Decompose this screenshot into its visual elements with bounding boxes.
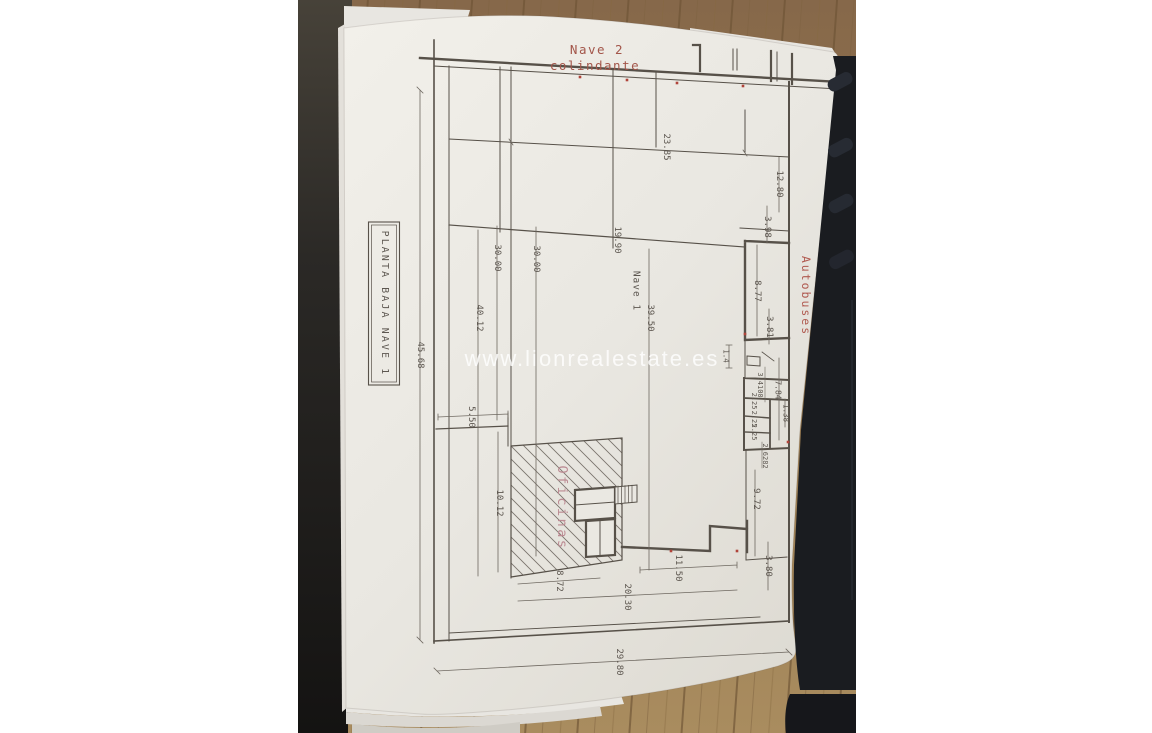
dim-29-80: 29.80 bbox=[614, 648, 624, 675]
dim-10-12: 10.12 bbox=[494, 489, 504, 516]
dim-3-81: 3.81 bbox=[764, 316, 774, 338]
dim-30-00-a: 30.00 bbox=[492, 244, 502, 271]
dim-2-6282: 2.6282 bbox=[761, 443, 769, 468]
room-label-nave1: Nave 1 bbox=[631, 271, 642, 311]
dim-9-72: 9.72 bbox=[751, 488, 761, 510]
neighbor-label-line1: Nave 2 bbox=[570, 42, 624, 57]
dim-40-12: 40.12 bbox=[474, 304, 484, 331]
dim-8-72: 8.72 bbox=[554, 570, 564, 592]
dim-1-38: 1.38 bbox=[782, 404, 791, 423]
oficinas-block bbox=[511, 438, 637, 577]
dim-8-77: 8.77 bbox=[752, 280, 762, 302]
dim-45-68: 45.68 bbox=[415, 341, 425, 368]
dim-5-50: 5.50 bbox=[466, 406, 476, 428]
dim-23-85: 23.85 bbox=[661, 133, 671, 160]
dark-object-bottom-right bbox=[785, 694, 856, 733]
title-box-text: PLANTA BAJA NAVE 1 bbox=[379, 231, 390, 377]
room-label-autobuses: Autobuses bbox=[799, 256, 813, 336]
dim-7-84: 7.84 bbox=[774, 380, 783, 399]
dim-20-30: 20.30 bbox=[622, 583, 632, 610]
dim-3-98: 3.98 bbox=[762, 216, 772, 238]
dim-19-90: 19.90 bbox=[612, 226, 622, 253]
dim-39-50: 39.50 bbox=[645, 304, 655, 331]
watermark-text: www.lionrealestate.es bbox=[464, 346, 720, 371]
floor-plan-photo: PLANTA BAJA NAVE 1 Nave 2 colindante Aut… bbox=[0, 0, 1152, 733]
dim-3-80: 3.80 bbox=[763, 555, 773, 577]
room-label-oficinas: Oficinas bbox=[554, 465, 570, 550]
dim-2-25-a: 2.25 bbox=[750, 393, 758, 410]
screenshot-root: PLANTA BAJA NAVE 1 Nave 2 colindante Aut… bbox=[0, 0, 1152, 733]
dim-1-4: 1.4 bbox=[722, 349, 731, 363]
dim-11-50: 11.50 bbox=[673, 554, 683, 581]
neighbor-label-line2: colindante bbox=[550, 58, 640, 73]
dim-30-00-b: 30.00 bbox=[531, 245, 541, 272]
dim-2-25-c: 2.25 bbox=[750, 424, 758, 441]
dim-12-80: 12.80 bbox=[774, 170, 784, 197]
